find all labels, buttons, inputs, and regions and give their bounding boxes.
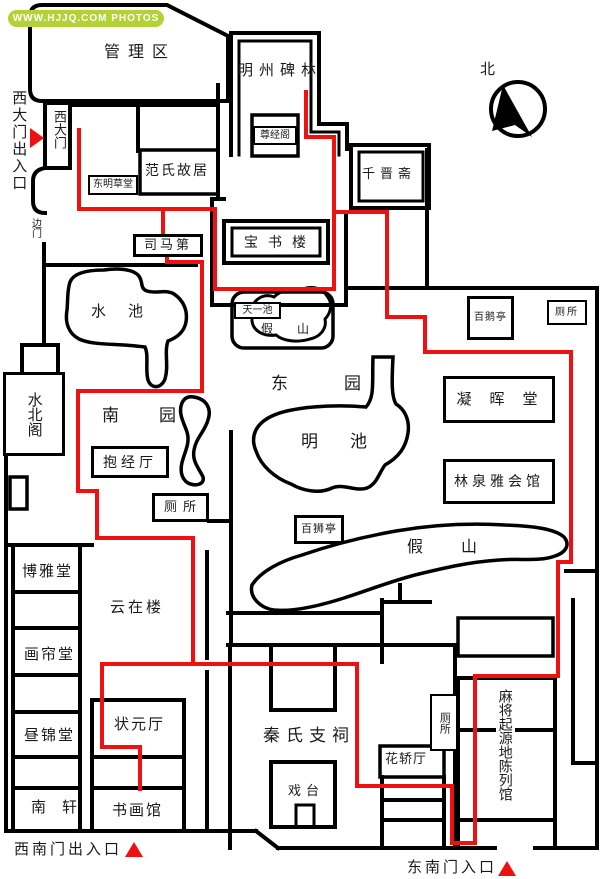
wall-corridor-south — [228, 613, 455, 645]
qin-front-hall — [271, 645, 335, 710]
label-stele-forest: 明州碑林 — [238, 62, 322, 79]
stage-inner — [296, 805, 314, 827]
west-gate-arrow — [30, 128, 44, 148]
label-west-pond: 水池 — [91, 303, 165, 320]
toilet-southeast: 厕所 — [430, 694, 458, 751]
wall-south-east-divider — [207, 432, 231, 831]
building-baieting: 百鹅亭 — [467, 296, 514, 340]
west-pond-shape — [66, 269, 186, 387]
label-ming-pond: 明池 — [301, 432, 399, 452]
building-baojingting: 抱经厅 — [91, 446, 169, 478]
garden-map: WWW.HJJQ.COM PHOTOS 管理区 明州碑林 北 南园 东园 明池 … — [0, 0, 600, 879]
label-rockery-south: 假山 — [407, 539, 515, 557]
compass-rose — [491, 82, 545, 137]
building-mahjong-museum: 麻将起源地陈列馆 — [496, 688, 515, 802]
building-zhuangyuan-hall: 状元厅 — [114, 716, 165, 733]
room-small-west — [10, 477, 27, 509]
building-stage: 戏台 — [288, 784, 324, 799]
building-baishiting: 百狮亭 — [294, 515, 344, 544]
toilet-west: 厕所 — [152, 493, 209, 522]
label-southwest-gate: 西南门出入口 — [14, 841, 122, 858]
label-west-gate: 西大门 — [51, 110, 66, 149]
label-west-gate-exit: 西大门出入口 — [10, 90, 27, 192]
building-qin-ancestral-hall: 秦氏支祠 — [263, 726, 355, 746]
southwest-gate-arrow — [125, 842, 143, 857]
wall-left-column — [6, 545, 92, 831]
building-nanxuan: 南轩 — [31, 799, 93, 816]
building-baoshulou: 宝书楼 — [244, 234, 316, 250]
building-hualiantang: 画帘堂 — [24, 646, 75, 663]
building-zunjingge: 尊经阁 — [253, 126, 297, 145]
building-boyatang: 博雅堂 — [22, 563, 73, 580]
label-south-garden: 南园 — [102, 406, 216, 426]
building-yunzailou: 云在楼 — [110, 599, 164, 616]
toilet-northeast: 厕所 — [547, 300, 587, 325]
wall-shuibeige-step — [22, 345, 58, 372]
building-huajiaoting: 花轿厅 — [385, 752, 427, 767]
label-tianyi-pond: 天一池 — [234, 302, 281, 319]
building-qianjinzhai: 千晋斋 — [362, 167, 416, 182]
building-fan-residence: 范氏故居 — [145, 162, 209, 178]
watermark-badge: WWW.HJJQ.COM PHOTOS — [8, 10, 164, 27]
label-east-garden: 东园 — [271, 374, 417, 394]
building-ninghuitang: 凝晖堂 — [443, 376, 555, 423]
building-linquan-club: 林泉雅会馆 — [443, 459, 555, 504]
building-dongming-cottage: 东明草堂 — [88, 175, 138, 195]
building-zhoujintang: 昼锦堂 — [24, 727, 75, 744]
building-shuibeige: 水北阁 — [3, 372, 65, 456]
southeast-gate-arrow — [498, 861, 516, 876]
label-north: 北 — [480, 61, 495, 78]
east-annex — [458, 618, 553, 656]
label-management-area: 管理区 — [104, 44, 176, 62]
label-southeast-gate: 东南门入口 — [407, 859, 497, 876]
wall-west-gate-hook — [33, 168, 45, 213]
building-simadi: 司马第 — [133, 234, 203, 257]
building-shuhuaguan: 书画馆 — [112, 802, 163, 819]
label-side-door: 边门 — [29, 218, 41, 238]
label-rockery-north: 假山 — [261, 323, 333, 337]
